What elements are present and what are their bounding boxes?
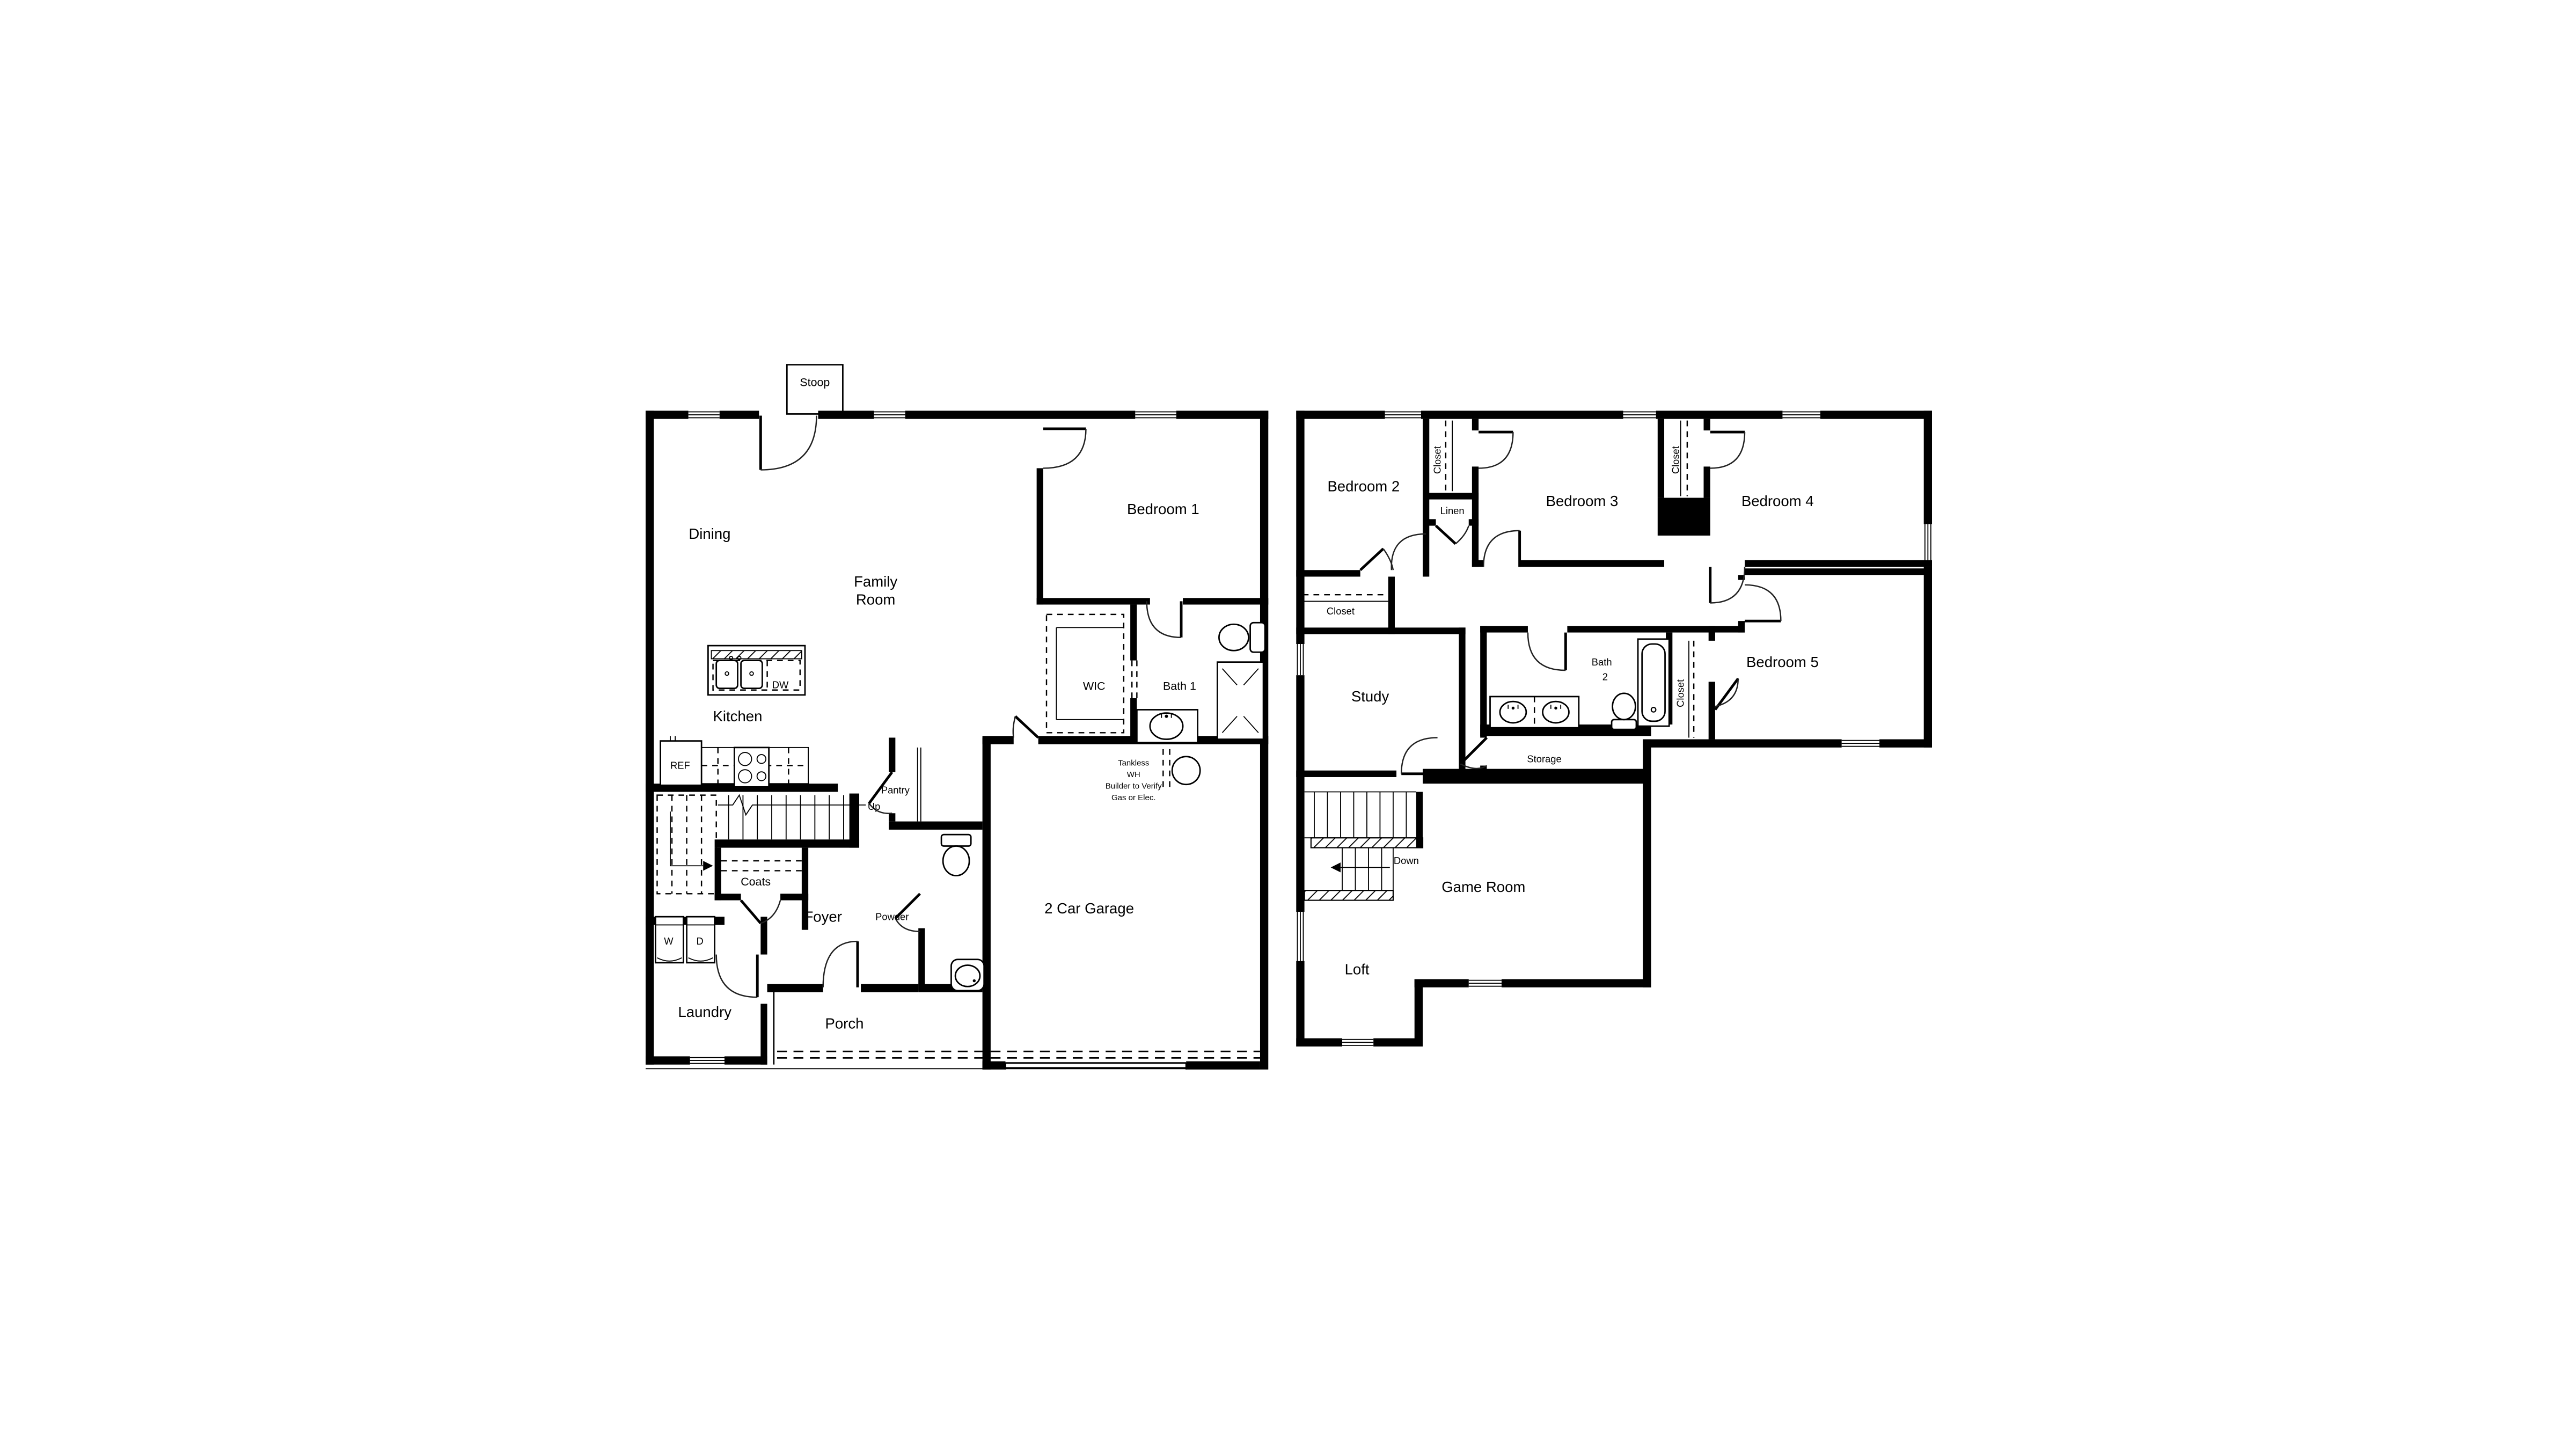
study-door <box>1401 737 1437 773</box>
label-bedroom4: Bedroom 4 <box>1741 493 1814 509</box>
label-wh-2: WH <box>1127 770 1140 779</box>
label-washer: W <box>664 935 674 947</box>
label-storage: Storage <box>1527 753 1561 764</box>
window-bedroom1 <box>1135 412 1176 418</box>
label-gameroom: Game Room <box>1441 879 1525 895</box>
label-closet-bed4: Closet <box>1670 446 1681 474</box>
window-dining <box>689 412 720 418</box>
bedroom3-closet-door <box>1479 432 1513 468</box>
window-loft-left <box>1297 912 1303 961</box>
bath1-sink-icon <box>1137 709 1197 742</box>
stove-icon <box>734 748 769 787</box>
label-bedroom1: Bedroom 1 <box>1127 501 1199 517</box>
bath1-shower-icon <box>1217 662 1263 740</box>
label-dw: DW <box>772 679 789 691</box>
second-floor-plan: Bedroom 2 Closet Linen Bedroom 3 Closet … <box>1296 411 1932 1046</box>
powder-toilet-icon <box>941 835 971 876</box>
window-loft-bottom <box>1342 1040 1373 1045</box>
label-dryer: D <box>696 935 703 947</box>
label-wh-4: Gas or Elec. <box>1111 793 1156 802</box>
label-stoop: Stoop <box>800 376 830 389</box>
coats-shelving <box>721 861 802 870</box>
kitchen-island <box>708 646 805 695</box>
laundry-door <box>716 955 758 998</box>
label-ref: REF <box>670 760 690 771</box>
wic-shelving <box>1046 614 1124 733</box>
label-family-1: Family <box>854 573 897 590</box>
garage-entry-door <box>1013 716 1038 738</box>
window-study <box>1297 644 1303 675</box>
label-bedroom3: Bedroom 3 <box>1546 493 1619 509</box>
label-garage: 2 Car Garage <box>1044 900 1134 917</box>
window-bedroom4-top <box>1782 412 1820 418</box>
label-kitchen: Kitchen <box>713 708 763 724</box>
label-foyer: Foyer <box>804 908 841 925</box>
bedroom3-door <box>1483 531 1519 567</box>
front-entry-door <box>823 941 858 987</box>
linen-door <box>1436 526 1469 544</box>
water-heater-icon <box>1163 749 1200 791</box>
bath2-toilet-icon <box>1612 693 1636 729</box>
label-bedroom2: Bedroom 2 <box>1327 478 1400 494</box>
label-bath2-1: Bath <box>1592 656 1612 668</box>
labels-f1: Stoop Dining Family Room Bedroom 1 WIC B… <box>664 376 1199 1031</box>
label-down: Down <box>1394 855 1419 866</box>
label-bath2-2: 2 <box>1602 671 1608 682</box>
label-closet-bed5: Closet <box>1675 679 1686 707</box>
label-loft: Loft <box>1345 961 1370 977</box>
label-dining: Dining <box>689 525 730 542</box>
bedroom4-closet-door <box>1710 432 1745 468</box>
bedroom4-door <box>1710 567 1745 603</box>
label-coats: Coats <box>741 875 771 888</box>
powder-sink-icon <box>951 960 984 991</box>
label-bath1: Bath 1 <box>1163 680 1196 693</box>
label-closet-bed3: Closet <box>1432 446 1443 474</box>
garage-door <box>1005 1063 1186 1070</box>
label-up: Up <box>868 801 880 812</box>
label-linen: Linen <box>1440 505 1465 516</box>
label-wh-1: Tankless <box>1118 759 1149 768</box>
label-wic: WIC <box>1083 680 1106 693</box>
stairs-f2 <box>1305 792 1423 901</box>
bath1-door <box>1147 601 1181 637</box>
label-porch: Porch <box>825 1015 863 1031</box>
window-gameroom <box>1469 980 1502 986</box>
bath2-vanity-icon <box>1490 697 1579 728</box>
first-floor-plan: Stoop Dining Family Room Bedroom 1 WIC B… <box>646 365 1268 1070</box>
label-closet-bed2: Closet <box>1327 605 1355 617</box>
floor-plan-canvas: Stoop Dining Family Room Bedroom 1 WIC B… <box>0 0 2576 1449</box>
bath2-tub-icon <box>1638 639 1669 726</box>
front-stoop-door <box>760 415 816 470</box>
label-bedroom5: Bedroom 5 <box>1746 654 1819 670</box>
label-powder: Powder <box>875 911 909 922</box>
label-study: Study <box>1351 688 1389 705</box>
label-wh-3: Builder to Verify <box>1106 781 1162 791</box>
window-bedroom3 <box>1623 412 1656 418</box>
window-family <box>874 412 905 418</box>
bath2-door <box>1528 633 1565 670</box>
bedroom5-door <box>1745 585 1781 621</box>
bedroom2-closet-door <box>1360 548 1393 570</box>
stoop-structure <box>787 365 843 414</box>
window-bedroom5 <box>1842 741 1879 747</box>
bedroom2-door <box>1392 534 1426 570</box>
window-bedroom2 <box>1385 412 1421 418</box>
label-family-2: Room <box>856 591 895 608</box>
window-laundry <box>690 1058 724 1064</box>
label-laundry: Laundry <box>678 1004 731 1020</box>
bath1-toilet-icon <box>1219 623 1265 652</box>
bedroom5-closet-door <box>1715 678 1738 709</box>
label-pantry: Pantry <box>881 785 910 796</box>
bedroom1-door <box>1043 429 1086 468</box>
